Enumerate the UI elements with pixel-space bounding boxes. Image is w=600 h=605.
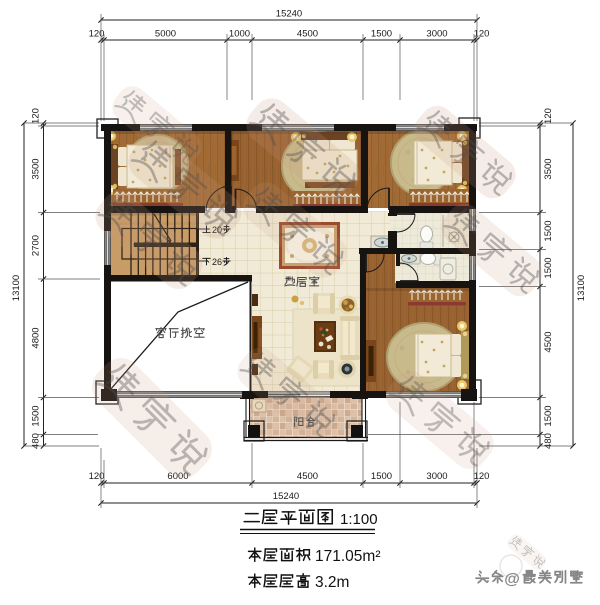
svg-text:1500: 1500 [371,29,392,40]
svg-text:120: 120 [89,471,105,482]
svg-text:171.05m²: 171.05m² [315,548,380,565]
svg-text:120: 120 [89,29,105,40]
svg-text:120: 120 [543,108,554,124]
svg-text:2700: 2700 [31,235,42,256]
svg-text:15240: 15240 [273,491,299,502]
svg-text:4500: 4500 [297,471,318,482]
svg-text:1000: 1000 [229,29,250,40]
svg-text:1500: 1500 [371,471,392,482]
svg-text:3500: 3500 [543,158,554,179]
svg-text:3000: 3000 [426,471,447,482]
svg-text:480: 480 [543,433,554,449]
svg-text:3500: 3500 [31,158,42,179]
svg-text:4500: 4500 [297,29,318,40]
svg-text:3000: 3000 [426,29,447,40]
svg-text:120: 120 [474,471,490,482]
svg-text:1500: 1500 [31,405,42,426]
svg-text:15240: 15240 [276,9,302,20]
svg-text:4500: 4500 [543,331,554,352]
svg-text:1500: 1500 [543,405,554,426]
svg-text:@: @ [504,571,520,588]
svg-text:120: 120 [474,29,490,40]
svg-text:26: 26 [212,257,222,267]
svg-text:13100: 13100 [11,275,22,301]
svg-text:4800: 4800 [31,327,42,348]
svg-text:1500: 1500 [543,220,554,241]
svg-text:3.2m: 3.2m [315,574,349,591]
svg-text:120: 120 [31,108,42,124]
svg-text:13100: 13100 [576,275,587,301]
svg-text:1:100: 1:100 [340,511,378,528]
svg-text:480: 480 [31,433,42,449]
svg-text:1500: 1500 [543,257,554,278]
svg-text:5000: 5000 [155,29,176,40]
